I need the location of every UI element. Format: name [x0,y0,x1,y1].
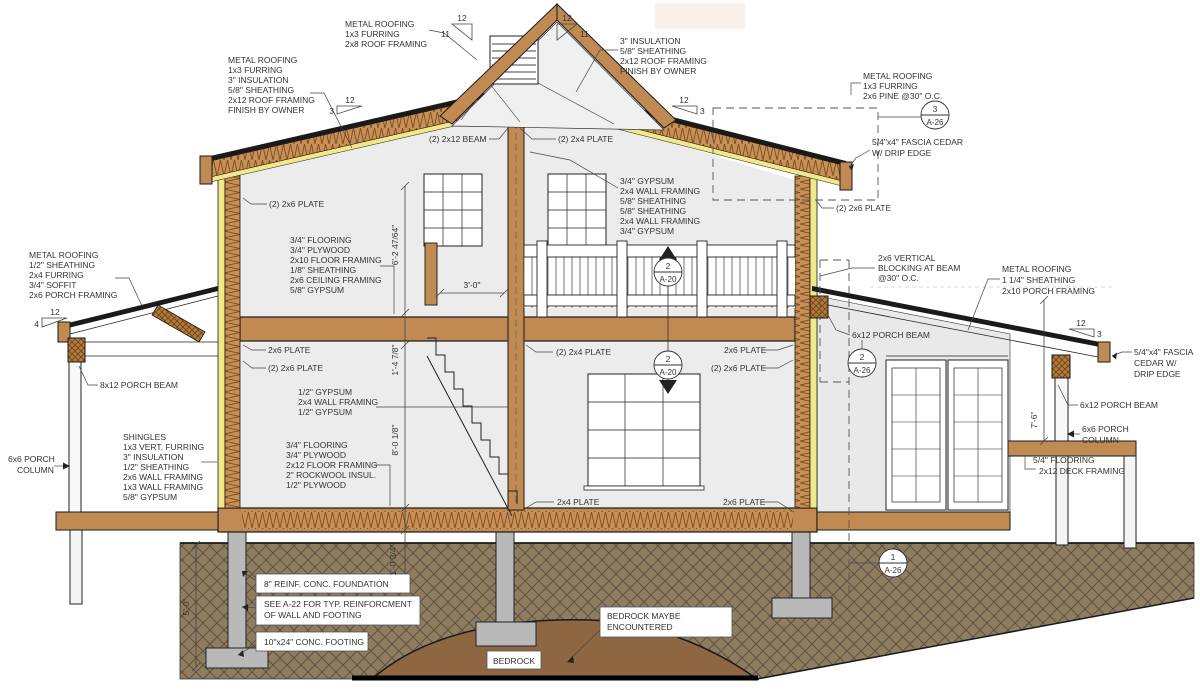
label-line: 5/8" SHEATHING [620,196,686,206]
label-line: METAL ROOFING [228,55,297,65]
label-line: 6x6 PORCH [8,454,55,464]
slope-run: 12 [50,307,60,317]
left-wall-insulation [225,176,240,508]
callout-porch-beam: 2 A-26 [848,349,876,377]
porch-beam-right-at-wall [810,296,828,318]
window-first-floor [584,374,704,490]
label-line: METAL ROOFING [863,71,932,81]
label-line: 1x3 VERT. FURRING [123,442,204,452]
label-line: 1/2" GYPSUM [298,407,352,417]
label-line: 2x4 WALL FRAMING [620,216,700,226]
dim-foundation-depth: 5'-0" [181,599,191,616]
left-wall-shingle [218,176,225,508]
label-line: 2x6 CEILING FRAMING [290,275,382,285]
slope-rise: 3 [329,106,334,116]
label-plate-upper-left: (2) 2x6 PLATE [269,199,324,209]
label-line: BEDROCK [493,656,535,666]
label-line: 1/2" SHEATHING [29,260,95,270]
label-line: 1/8" SHEATHING [290,265,356,275]
dim-slab-depth: 1'-0 3/4" [388,544,398,575]
label-line: 5/4" FLOORING [1033,455,1095,465]
label-plate-bottom-center: 2x4 PLATE [557,497,600,507]
label-line: CEDAR W/ [1134,358,1177,368]
window-sill [584,486,704,490]
label-porch-beam-left: 8x12 PORCH BEAM [100,380,178,390]
porch-column-right [1055,378,1068,441]
label-line: 5/8" GYPSUM [290,285,344,295]
label-right-porch-roof: METAL ROOFING 1 1/4" SHEATHING 2x10 PORC… [1002,264,1095,296]
drawing-sheet: 12 11 12 11 12 3 12 3 12 4 12 3 [0,0,1200,693]
label-line: DRIP EDGE [1134,369,1181,379]
label-line: METAL ROOFING [1002,264,1071,274]
label-line: 6x6 PORCH [1082,424,1129,434]
slope-porch-right: 12 3 [1069,318,1102,339]
callout-sheet: A-26 [854,366,871,375]
label-line: 8" REINF. CONC. FOUNDATION [264,579,389,589]
label-line: 2x4 FURRING [29,270,84,280]
callout-sheet: A-26 [885,566,902,575]
right-wall-insulation [795,176,810,508]
label-line: 2x6 VERTICAL [878,253,936,263]
dim-stair-width: 3'-0" [464,280,481,290]
slope-run: 12 [457,13,467,23]
label-see-note: SEE A-22 FOR TYP. REINFORCMENT OF WALL A… [256,596,420,625]
label-line: BEDROCK MAYBE [607,611,681,621]
label-plate-mid-left-a: 2x6 PLATE [268,345,311,355]
label-plate-far-right: (2) 2x6 PLATE [836,203,891,213]
label-line: COLUMN [17,465,54,475]
label-line: 1x3 FURRING [345,29,400,39]
porch-column-left [69,362,81,512]
slope-rise: 11 [441,29,450,39]
callout-number: 2 [666,261,671,271]
label-line: 3/4" FLOORING [290,235,352,245]
label-line: W/ DRIP EDGE [872,148,932,158]
callout-stair: 2 A-20 [654,351,682,379]
label-ext-wall: SHINGLES 1x3 VERT. FURRING 3" INSULATION… [123,432,204,502]
label-line: 2" ROCKWOOL INSUL. [286,470,376,480]
label-line: 1x3 FURRING [228,65,283,75]
dim-floor1-height: 8'-0 1/8" [390,424,400,455]
label-gable-roof: METAL ROOFING 1x3 FURRING 2x8 ROOF FRAMI… [345,19,427,49]
label-far-right-roof: METAL ROOFING 1x3 FURRING 2x6 PINE @30" … [863,71,942,101]
sunroom-floor [817,512,1010,530]
porch-beam-right-at-column [1052,355,1070,378]
label-line: 5/4"x4" FASCIA CEDAR [872,137,963,147]
balcony-top-rail [524,245,795,257]
callout-sheet: A-20 [660,275,677,284]
label-line: 5/8" SHEATHING [620,206,686,216]
dim-floor2-height: 6'-2 47/64" [390,225,400,266]
label-plate-mid-left-b: (2) 2x6 PLATE [268,363,323,373]
label-line: 3/4" PLYWOOD [290,245,350,255]
callout-sheet: A-20 [660,368,677,377]
section-drawing: 12 11 12 11 12 3 12 3 12 4 12 3 [0,0,1200,693]
label-porch-beam-right-a: 6x12 PORCH BEAM [852,330,930,340]
label-bedrock-note: BEDROCK MAYBE ENCOUNTERED [600,607,732,637]
callout-top-right: 3 A-26 [921,101,949,129]
fascia-right [840,162,852,190]
label-line: 3/4" GYPSUM [620,176,674,186]
label-line: 3" INSULATION [620,36,680,46]
footing-center [476,622,536,646]
label-line: FINISH BY OWNER [620,66,696,76]
label-porch-beam-right-b: 6x12 PORCH BEAM [1080,400,1158,410]
label-deck: 5/4" FLOORING 2x12 DECK FRAMING [1033,455,1125,476]
label-plate-mid-center: (2) 2x4 PLATE [556,347,611,357]
label-line: 3/4" SOFFIT [29,280,76,290]
label-line: 2x12 ROOF FRAMING [620,56,707,66]
left-porch-floor [56,512,218,530]
slope-rise: 3 [700,106,705,116]
label-line: ENCOUNTERED [607,622,673,632]
callout-number: 2 [666,354,671,364]
label-line: 1x3 WALL FRAMING [123,482,203,492]
slope-run: 12 [345,95,355,105]
slope-rise: 3 [1097,329,1102,339]
porch-beam-left [68,338,85,362]
slope-run: 12 [679,95,689,105]
label-line: SEE A-22 FOR TYP. REINFORCMENT [264,599,412,609]
label-fascia-top: 5/4"x4" FASCIA CEDAR W/ DRIP EDGE [872,137,963,158]
label-plate-mid-right-b: (2) 2x6 PLATE [711,363,766,373]
label-line: OF WALL AND FOOTING [264,610,362,620]
label-line: 2x4 WALL FRAMING [620,186,700,196]
slope-run: 12 [1076,318,1086,328]
label-beam-2x12: (2) 2x12 BEAM [429,134,487,144]
label-line: 5/8" SHEATHING [228,85,294,95]
label-right-roof: 3" INSULATION 5/8" SHEATHING 2x12 ROOF F… [620,36,707,76]
label-line: 5/4"x4" FASCIA [1134,347,1194,357]
stair-newel-post [425,243,437,305]
label-line: 3/4" PLYWOOD [286,450,346,460]
slope-main-right: 12 3 [672,95,705,116]
right-porch-fascia [1098,342,1110,362]
window-upper-left [424,174,482,246]
label-bedrock: BEDROCK [487,651,541,669]
right-wall-shingle [810,176,817,508]
label-line: @30" O.C. [878,273,919,283]
label-line: BLOCKING AT BEAM [878,263,960,273]
callout-number: 3 [933,104,938,114]
slope-rise: 11 [580,29,589,39]
fascia-left [200,156,212,184]
label-left-roof: METAL ROOFING 1x3 FURRING 3" INSULATION … [228,55,315,115]
label-plate-mid-right-a: 2x6 PLATE [724,345,767,355]
label-line: 1/2" GYPSUM [298,387,352,397]
label-line: 1 1/4" SHEATHING [1002,275,1075,285]
label-line: 2x12 FLOOR FRAMING [286,460,378,470]
label-line: 3" INSULATION [228,75,288,85]
label-line: 2x10 FLOOR FRAMING [290,255,382,265]
callout-sheet: A-26 [927,118,944,127]
foundation-stem-left [228,530,246,648]
label-line: FINISH BY OWNER [228,105,304,115]
label-line: SHINGLES [123,432,166,442]
label-plate-bottom-right: 2x6 PLATE [723,497,766,507]
label-line: 3/4" FLOORING [286,440,348,450]
label-line: COLUMN [1082,435,1119,445]
label-line: 2x8 ROOF FRAMING [345,39,427,49]
label-line: 10"x24" CONC. FOOTING [264,637,364,647]
label-line: 1/2" PLYWOOD [286,480,346,490]
callout-number: 1 [891,552,896,562]
deck-pier-right [1124,456,1136,548]
label-line: 3" INSULATION [123,452,183,462]
label-line: 2x4 WALL FRAMING [298,397,378,407]
label-line: 5/8" SHEATHING [620,46,686,56]
foundation-stem-center [496,530,514,622]
label-line: 2x6 PINE @30" O.C. [863,91,942,101]
label-line: 2x10 PORCH FRAMING [1002,286,1095,296]
porch-roof-brace [152,305,205,342]
label-line: 1x3 FURRING [863,81,918,91]
label-line: METAL ROOFING [345,19,414,29]
label-line: 2x12 DECK FRAMING [1039,466,1125,476]
label-blocking: 2x6 VERTICAL BLOCKING AT BEAM @30" O.C. [878,253,960,283]
slope-gable-left: 12 11 [441,13,472,40]
callout-foundation: 1 A-26 [879,549,907,577]
cropped-artifact [655,3,745,29]
first-floor-insulation [242,511,793,529]
label-fascia-low: 5/4"x4" FASCIA CEDAR W/ DRIP EDGE [1134,347,1194,379]
label-line: 2x6 WALL FRAMING [123,472,203,482]
balcony-bottom-rail [524,295,795,306]
callout-balcony: 2 A-20 [654,258,682,286]
label-line: METAL ROOFING [29,250,98,260]
label-line: 2x6 PORCH FRAMING [29,290,117,300]
label-footing: 10"x24" CONC. FOOTING [256,632,368,651]
footing-right [772,598,832,618]
label-plate-2x4-top: (2) 2x4 PLATE [558,134,613,144]
label-line: 1/2" SHEATHING [123,462,189,472]
label-foundation-wall: 8" REINF. CONC. FOUNDATION [256,574,410,593]
label-line: 3/4" GYPSUM [620,226,674,236]
label-line: 2x12 ROOF FRAMING [228,95,315,105]
label-porch-col-left: 6x6 PORCH COLUMN [8,454,55,475]
label-left-porch-roof: METAL ROOFING 1/2" SHEATHING 2x4 FURRING… [29,250,117,300]
dim-floor-depth: 1'-4 7/8" [390,344,400,375]
dim-porch-height: 7'-6" [1029,412,1039,429]
callout-number: 2 [860,352,865,362]
label-line: 5/8" GYPSUM [123,492,177,502]
slope-run: 12 [562,13,572,23]
window-upper-right [548,174,606,246]
porch-pier-left [70,530,82,604]
foundation-stem-right [792,530,810,598]
slope-rise: 4 [34,319,39,329]
